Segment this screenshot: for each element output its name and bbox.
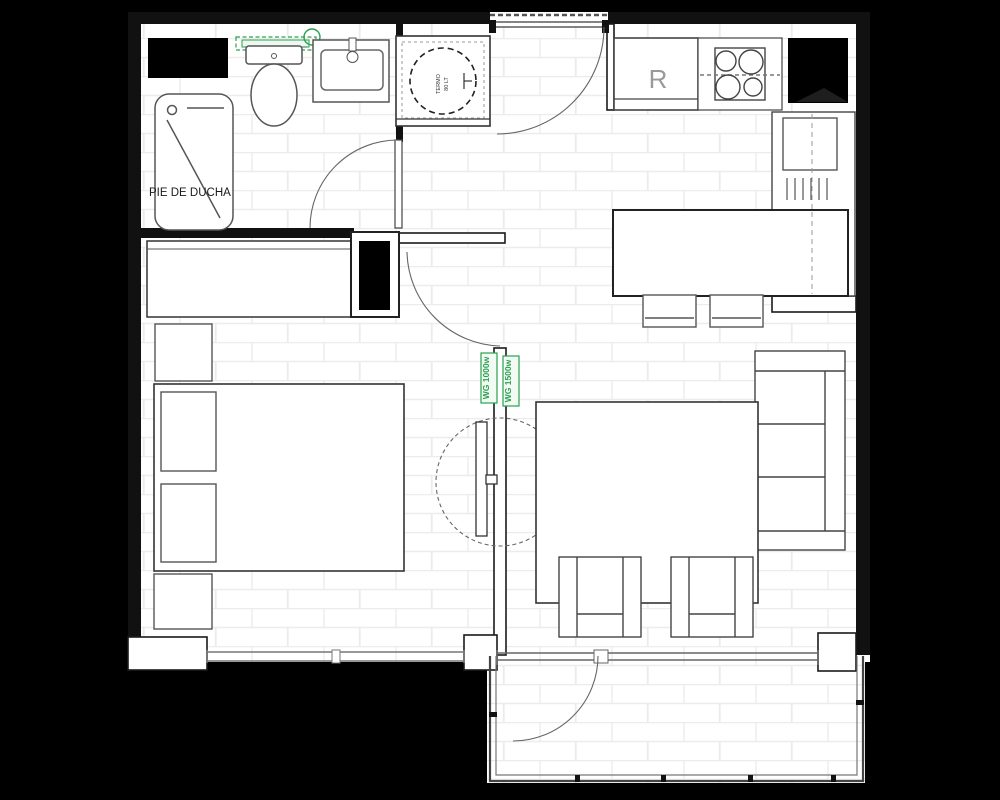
wall-bedroom-bottom-right: [464, 635, 497, 670]
bathroom-door-leaf: [395, 140, 402, 228]
pillow: [161, 484, 216, 562]
pillow: [161, 392, 216, 471]
bar-stool: [710, 295, 763, 327]
bed: [154, 384, 404, 571]
wardrobe: [147, 232, 399, 317]
water-heater-label-1: TERMO: [436, 73, 442, 94]
wall-bedroom-bottom-left: [128, 637, 207, 670]
floor-plan: PIE DE DUCHA: [0, 0, 1000, 800]
wall-right: [856, 12, 870, 655]
wall-left: [128, 12, 141, 670]
wall-hall-bedroom: [398, 233, 505, 243]
outside-lower-left: [128, 670, 487, 800]
sofa: [755, 351, 845, 550]
entrance-door-leaf: [494, 22, 606, 27]
nightstand-top: [155, 324, 212, 381]
fridge: R: [614, 38, 698, 110]
wall-living-bottom-right: [818, 633, 856, 671]
heater-right-label: WG 1500w: [503, 359, 513, 402]
wall-kitchen-living: [772, 296, 856, 312]
bar-stool: [643, 295, 696, 327]
heater-left-label: WG 1000w: [481, 356, 491, 399]
washbasin: [313, 38, 389, 102]
balcony-floor: [487, 650, 865, 783]
floor-plan-drawing: PIE DE DUCHA: [0, 0, 1000, 800]
wardrobe-dark-unit: [359, 241, 390, 310]
dining-chair: [559, 557, 641, 637]
water-heater-label-2: 80 LT: [444, 77, 450, 91]
fridge-label: R: [649, 64, 668, 94]
kitchen-sink: [783, 118, 837, 170]
cooktop: [698, 38, 782, 110]
kitchen-hood: [788, 38, 848, 103]
water-heater-closet: TERMO 80 LT: [396, 36, 490, 126]
nightstand-bottom: [154, 574, 212, 629]
shower-label: PIE DE DUCHA: [149, 187, 231, 199]
bathroom-shaft: [148, 38, 228, 78]
dining-chair: [671, 557, 753, 637]
wall-entry-kitchen-stub: [607, 24, 614, 110]
shower-tray: [155, 94, 233, 230]
